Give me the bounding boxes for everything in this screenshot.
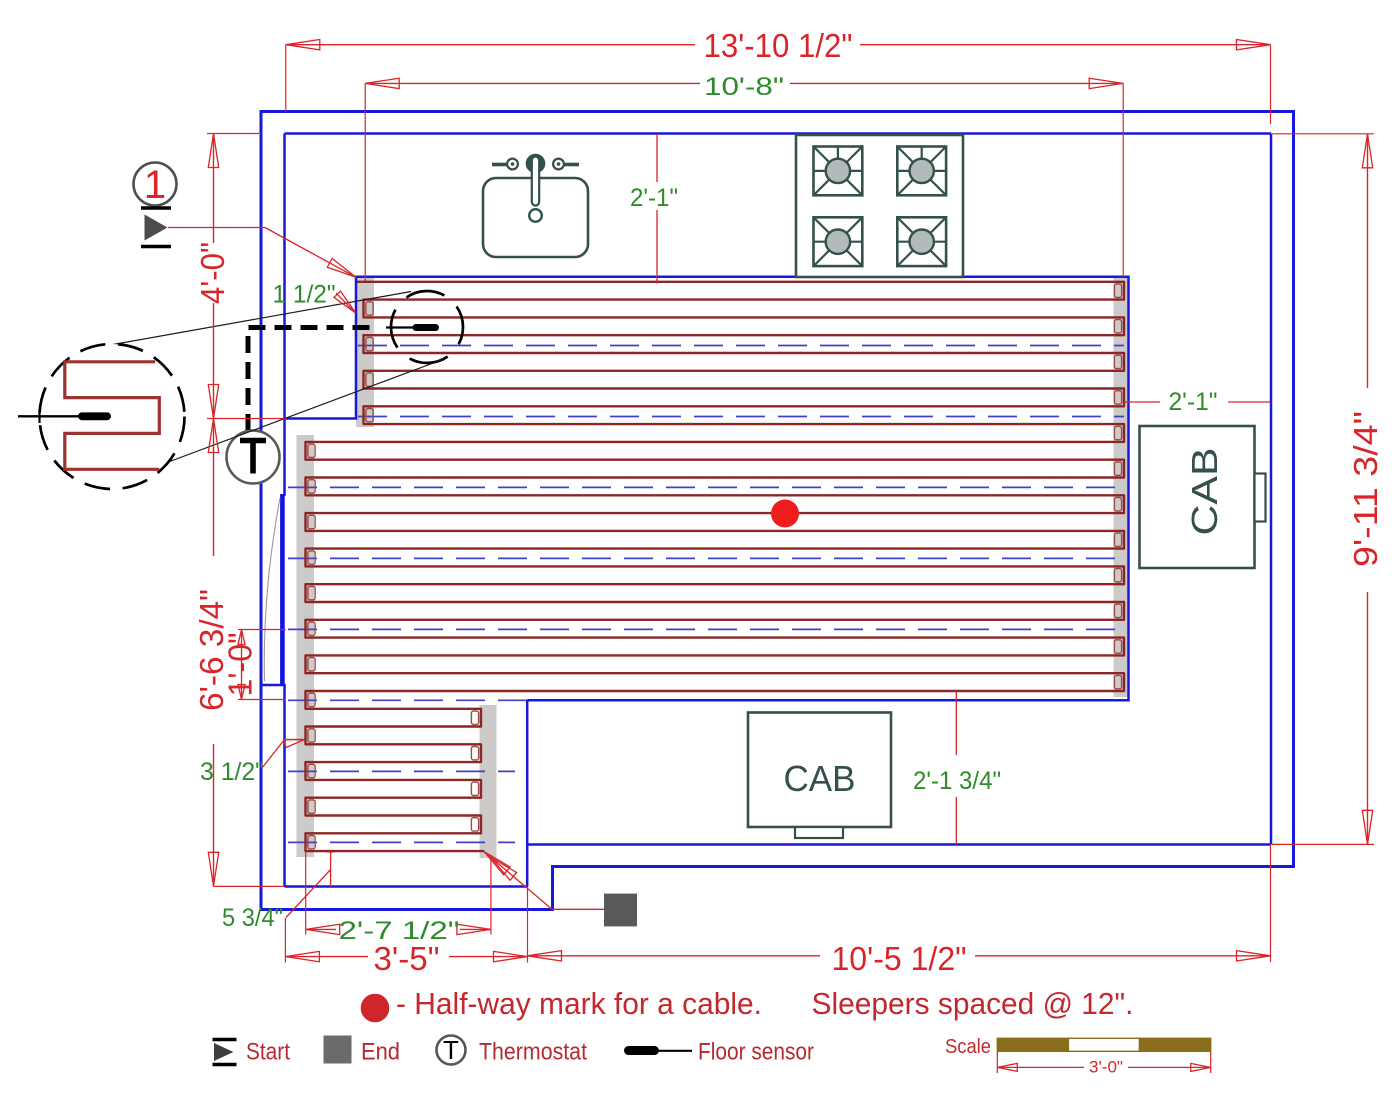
svg-text:2'-1": 2'-1" bbox=[1169, 388, 1218, 416]
svg-text:T: T bbox=[443, 1035, 459, 1065]
svg-text:Sleepers spaced @ 12".: Sleepers spaced @ 12". bbox=[812, 986, 1134, 1021]
svg-text:1: 1 bbox=[144, 163, 166, 207]
svg-text:13'-10 1/2": 13'-10 1/2" bbox=[704, 27, 853, 64]
svg-text:Thermostat: Thermostat bbox=[479, 1039, 587, 1066]
svg-text:4'-0": 4'-0" bbox=[194, 242, 231, 304]
svg-text:End: End bbox=[361, 1039, 400, 1066]
svg-text:3'-0": 3'-0" bbox=[1089, 1058, 1123, 1077]
svg-text:1 1/2": 1 1/2" bbox=[273, 281, 336, 309]
svg-text:2'-1 3/4": 2'-1 3/4" bbox=[913, 767, 1001, 795]
svg-text:- Half-way mark for a cable.: - Half-way mark for a cable. bbox=[396, 986, 762, 1021]
svg-text:Scale: Scale bbox=[945, 1036, 991, 1058]
svg-text:2'-1": 2'-1" bbox=[630, 184, 678, 212]
svg-text:1'-0": 1'-0" bbox=[222, 633, 259, 697]
svg-text:Start: Start bbox=[246, 1039, 290, 1066]
svg-text:10'-8": 10'-8" bbox=[704, 73, 784, 101]
svg-text:3 1/2": 3 1/2" bbox=[200, 758, 264, 786]
svg-text:9'-11 3/4": 9'-11 3/4" bbox=[1347, 411, 1384, 567]
svg-text:CAB: CAB bbox=[784, 758, 856, 799]
svg-text:10'-5 1/2": 10'-5 1/2" bbox=[832, 940, 967, 977]
svg-text:5 3/4": 5 3/4" bbox=[222, 904, 283, 932]
svg-text:3'-5": 3'-5" bbox=[374, 940, 440, 977]
svg-text:Floor sensor: Floor sensor bbox=[698, 1039, 814, 1066]
svg-text:CAB: CAB bbox=[1184, 448, 1225, 536]
